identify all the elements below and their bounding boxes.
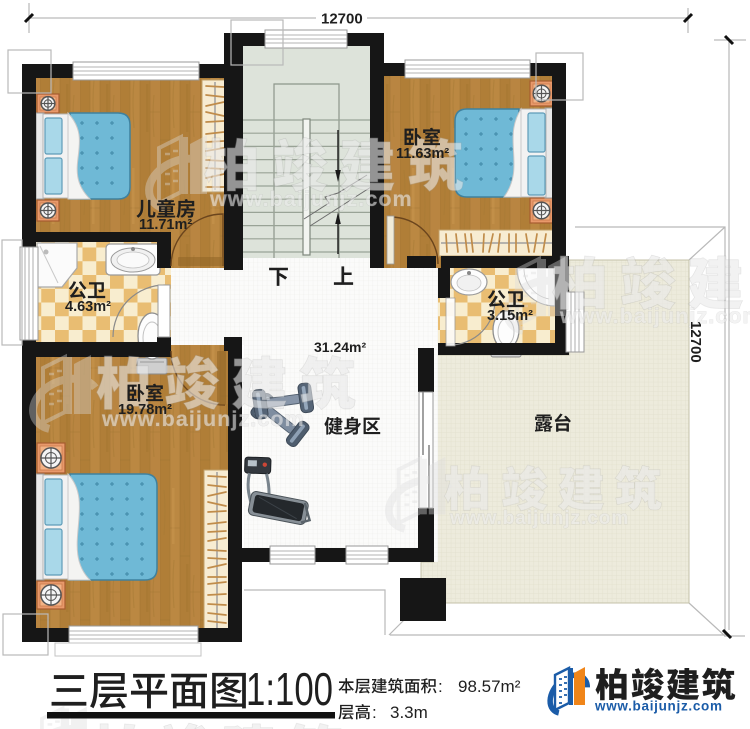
svg-text:11.71m²: 11.71m² (139, 217, 192, 233)
svg-text::: : (372, 703, 377, 722)
svg-text:3.3m: 3.3m (390, 703, 428, 722)
svg-text:3.15m²: 3.15m² (487, 308, 533, 324)
svg-text::: : (438, 677, 443, 696)
svg-text:31.24m²: 31.24m² (314, 339, 366, 355)
svg-text:www.baijunjz.com: www.baijunjz.com (559, 304, 750, 328)
svg-text:4.63m²: 4.63m² (65, 299, 111, 315)
svg-text:98.57m²: 98.57m² (458, 677, 521, 696)
svg-text:www.baijunjz.com: www.baijunjz.com (209, 187, 413, 211)
svg-text:12700: 12700 (321, 11, 363, 28)
svg-text:19.78m²: 19.78m² (118, 402, 172, 418)
svg-text:1:100: 1:100 (246, 663, 333, 715)
svg-text:11.63m²: 11.63m² (396, 146, 449, 162)
svg-text:www.baijunjz.com: www.baijunjz.com (594, 699, 723, 714)
svg-text:12700: 12700 (687, 321, 704, 363)
svg-text:www.baijunjz.com: www.baijunjz.com (449, 508, 629, 529)
